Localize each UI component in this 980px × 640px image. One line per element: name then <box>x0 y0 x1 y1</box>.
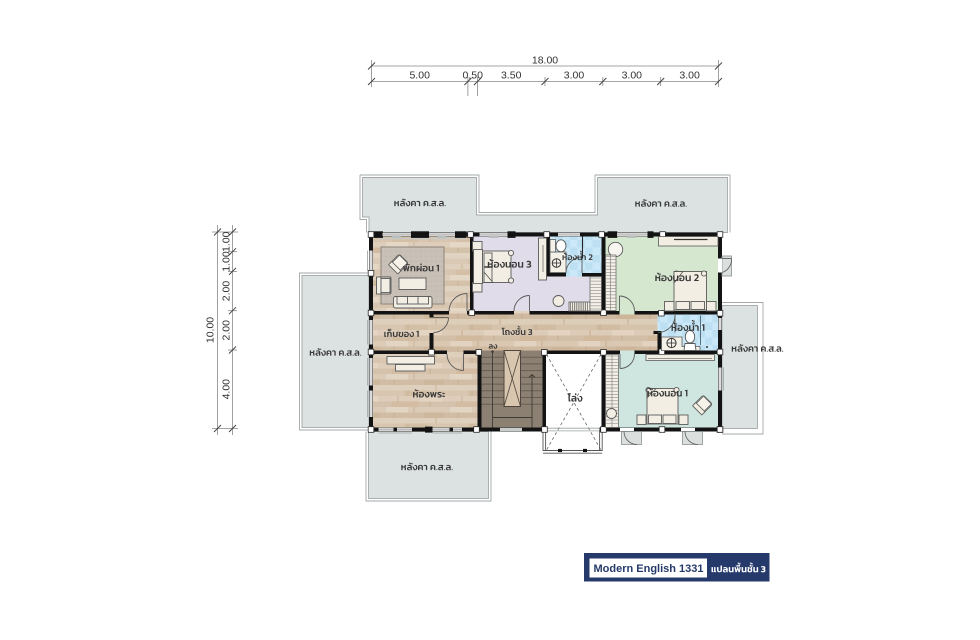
svg-text:2.00: 2.00 <box>221 281 233 302</box>
svg-text:Modern English 1331: Modern English 1331 <box>593 563 703 575</box>
svg-text:0.50: 0.50 <box>462 70 483 82</box>
svg-text:1.00: 1.00 <box>221 251 233 272</box>
svg-text:2.00: 2.00 <box>221 320 233 341</box>
svg-text:3.00: 3.00 <box>622 70 643 82</box>
svg-text:3.00: 3.00 <box>564 70 585 82</box>
svg-text:5.00: 5.00 <box>409 70 430 82</box>
svg-text:3.00: 3.00 <box>679 70 700 82</box>
svg-text:4.00: 4.00 <box>221 379 233 400</box>
svg-text:10.00: 10.00 <box>205 317 217 343</box>
svg-text:1.00: 1.00 <box>221 231 233 252</box>
svg-text:3.50: 3.50 <box>501 70 522 82</box>
svg-text:18.00: 18.00 <box>532 55 558 67</box>
